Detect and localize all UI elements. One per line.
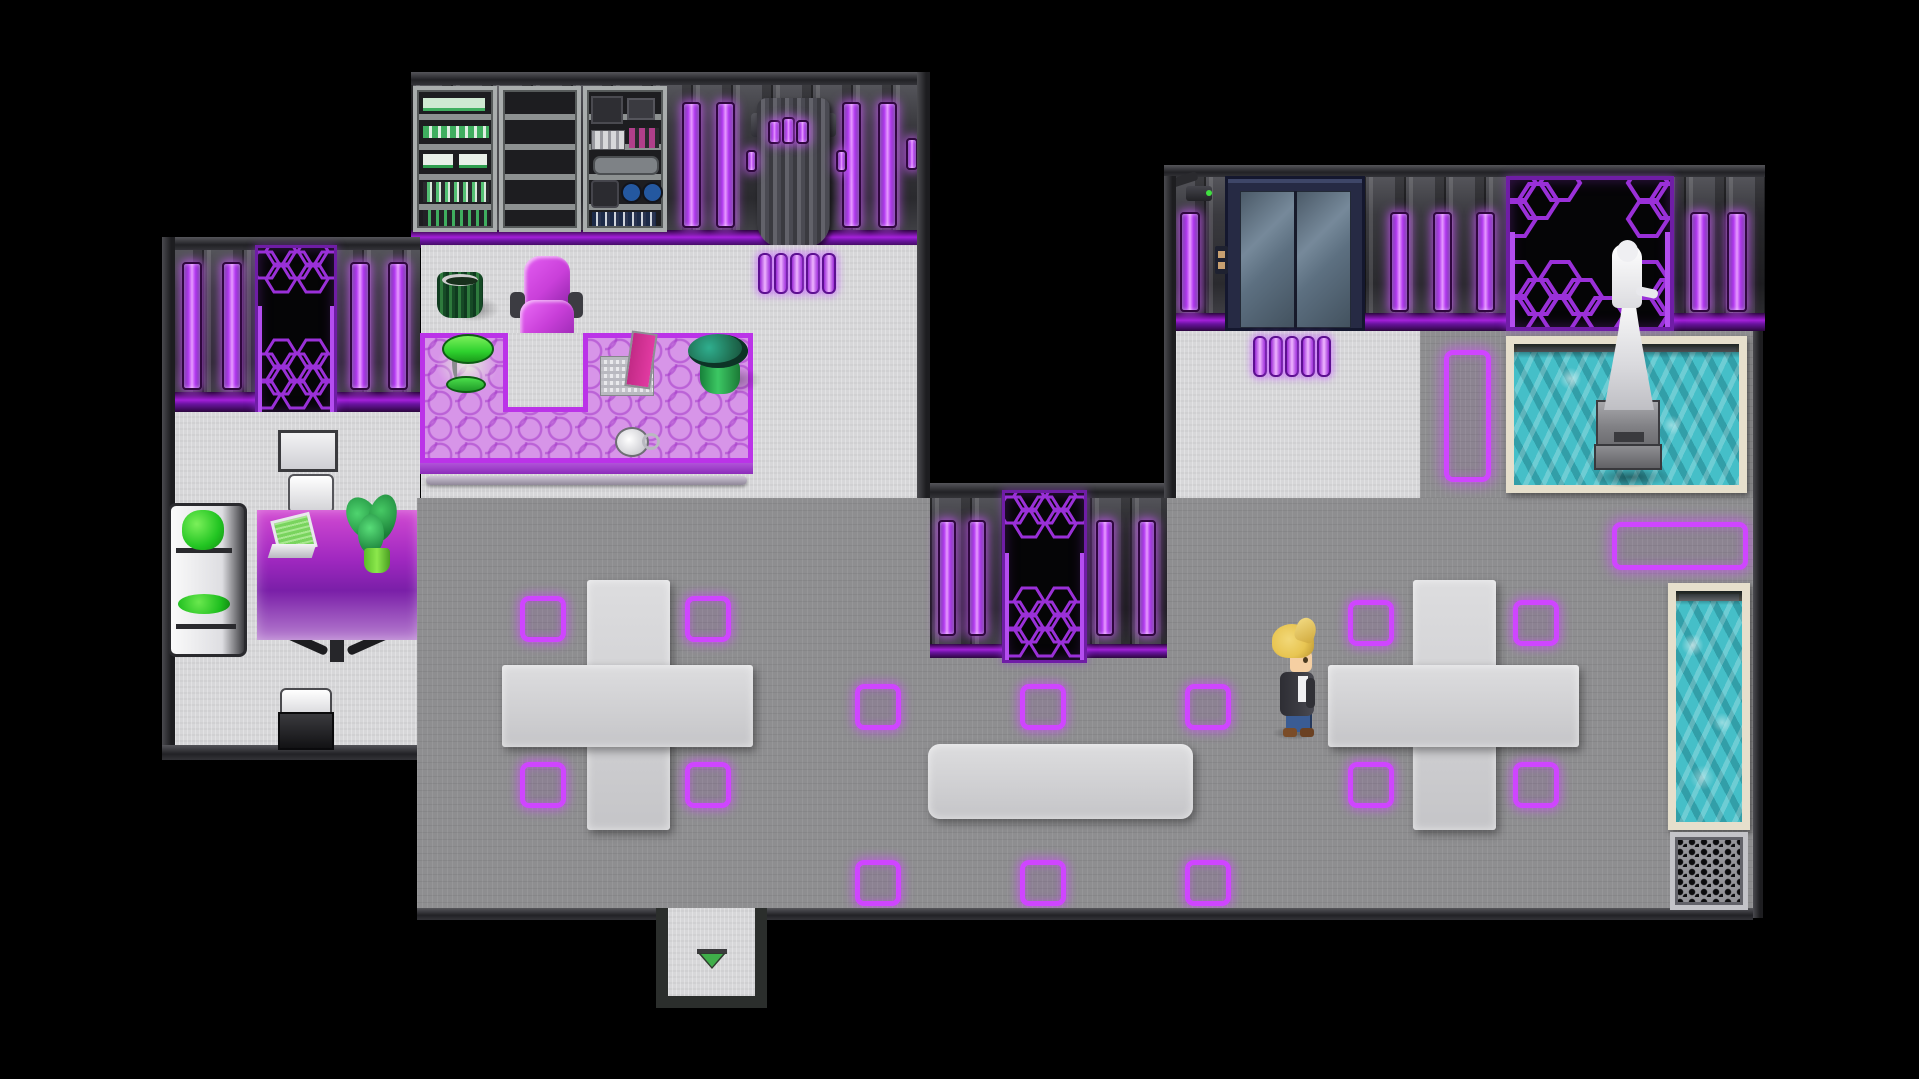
rack-device bbox=[591, 130, 625, 150]
floor-light-pill bbox=[1253, 336, 1267, 377]
elevator-door-gap bbox=[1294, 191, 1297, 328]
rack-module bbox=[459, 154, 487, 168]
wall-light-bar bbox=[968, 520, 986, 636]
rack-module bbox=[423, 98, 485, 111]
wall-light-bar bbox=[222, 262, 242, 390]
wall-light-bar bbox=[682, 102, 701, 228]
sofa-seam bbox=[176, 624, 236, 629]
player-shoe bbox=[1283, 728, 1297, 737]
wall-light-bar bbox=[1138, 520, 1156, 636]
rack-dial bbox=[642, 182, 663, 203]
call-button[interactable] bbox=[1218, 251, 1225, 258]
rack-dial bbox=[621, 182, 642, 203]
glow-floor-marker bbox=[1348, 762, 1394, 808]
call-button[interactable] bbox=[1218, 262, 1225, 269]
rack-device bbox=[591, 180, 619, 208]
glow-floor-marker bbox=[1020, 860, 1066, 906]
wall-light-bar bbox=[1690, 212, 1710, 312]
floor-light-pill bbox=[1285, 336, 1299, 377]
floor-light-pill bbox=[758, 253, 772, 294]
center-hex-door[interactable] bbox=[1002, 490, 1087, 663]
server-rack-green-modules bbox=[413, 86, 497, 232]
floor-light-pill bbox=[790, 253, 804, 294]
server-rack-equipment bbox=[583, 86, 667, 232]
floor-light-pill bbox=[1301, 336, 1315, 377]
lounge-hex-door[interactable] bbox=[255, 245, 337, 415]
pedestal-plaque bbox=[1614, 432, 1644, 442]
elevator-hall-left-edge bbox=[1164, 176, 1176, 498]
wall-light-bar bbox=[1180, 212, 1200, 312]
glow-floor-marker bbox=[855, 684, 901, 730]
horizontal-glow-rectangle bbox=[1612, 522, 1748, 570]
statue-base bbox=[1594, 444, 1662, 470]
hall-bottom-trim bbox=[417, 908, 658, 920]
glow-floor-marker bbox=[1348, 600, 1394, 646]
floor-light-pill bbox=[1317, 336, 1331, 377]
wall-light-bar bbox=[716, 102, 735, 228]
wall-light-bar bbox=[1433, 212, 1452, 312]
laptop-base bbox=[268, 544, 317, 558]
green-desk-lamp bbox=[442, 334, 494, 364]
floor-grate bbox=[1670, 832, 1748, 910]
office-wall-top-trim bbox=[411, 72, 930, 85]
wall-light-bar bbox=[388, 262, 408, 390]
lounge-left-edge bbox=[162, 237, 175, 760]
rack-module bbox=[423, 154, 453, 168]
camera-led bbox=[1206, 190, 1212, 196]
floor-light-pill bbox=[822, 253, 836, 294]
glow-floor-marker bbox=[685, 762, 731, 808]
bin-paper bbox=[442, 274, 478, 286]
black-terminal-desk bbox=[278, 712, 334, 750]
elevator-door-left[interactable] bbox=[1240, 191, 1295, 328]
glow-floor-marker bbox=[685, 596, 731, 642]
wall-light-bar bbox=[1390, 212, 1409, 312]
rack-magenta-slots bbox=[629, 128, 659, 148]
glow-floor-marker bbox=[1185, 684, 1231, 730]
elevator[interactable] bbox=[1225, 176, 1365, 331]
white-stool bbox=[288, 474, 334, 514]
desk-front bbox=[420, 463, 753, 474]
wall-light-bar bbox=[1476, 212, 1495, 312]
office-right-edge bbox=[917, 72, 930, 498]
rack-slots bbox=[592, 212, 656, 226]
wall-light-bar bbox=[938, 520, 956, 636]
game-viewport bbox=[0, 0, 1919, 1079]
wall-light-bar bbox=[878, 102, 897, 228]
drape-light bbox=[796, 120, 809, 144]
rack-device bbox=[591, 96, 623, 124]
glow-floor-marker bbox=[1020, 684, 1066, 730]
wall-pool bbox=[1668, 583, 1750, 830]
rack-connector bbox=[593, 156, 659, 175]
cup-handle bbox=[642, 433, 660, 450]
elevator-door-right[interactable] bbox=[1296, 191, 1351, 328]
glow-floor-marker bbox=[1513, 762, 1559, 808]
pool-water bbox=[1676, 601, 1742, 822]
cross-platform-right-horizontal bbox=[1328, 665, 1579, 747]
sofa-cushion-green bbox=[178, 594, 230, 614]
rack-module bbox=[423, 182, 489, 202]
wall-light-bar bbox=[182, 262, 202, 390]
drape-light bbox=[768, 120, 781, 144]
white-desk bbox=[278, 430, 338, 472]
floor-light-pill bbox=[774, 253, 788, 294]
pool-inner-shadow bbox=[1676, 591, 1742, 605]
floor-light-pill bbox=[806, 253, 820, 294]
plant-leaves bbox=[688, 334, 748, 368]
player-arm bbox=[1306, 678, 1315, 708]
hall-bottom-trim bbox=[765, 908, 1753, 920]
desk-cutout bbox=[503, 333, 588, 412]
wall-light-bar bbox=[1727, 212, 1747, 312]
glow-floor-marker bbox=[1185, 860, 1231, 906]
rack-module bbox=[423, 126, 489, 138]
rack-device bbox=[627, 98, 655, 120]
glow-floor-marker bbox=[855, 860, 901, 906]
bench-platform bbox=[928, 744, 1193, 819]
wall-light-bar bbox=[350, 262, 370, 390]
drape-light bbox=[782, 117, 795, 144]
drape-light bbox=[836, 150, 847, 172]
lamp-base bbox=[446, 376, 486, 393]
exit-arrow[interactable] bbox=[701, 954, 723, 967]
server-rack-empty bbox=[499, 86, 581, 232]
white-statue-head bbox=[1617, 240, 1638, 262]
plant-pot bbox=[364, 548, 390, 573]
desk-base-bar bbox=[426, 476, 747, 485]
sofa-cushion-green bbox=[182, 510, 224, 550]
cross-platform-left-horizontal bbox=[502, 665, 753, 747]
vertical-glow-rectangle bbox=[1444, 350, 1491, 482]
glow-floor-marker bbox=[1513, 600, 1559, 646]
glow-floor-marker bbox=[520, 762, 566, 808]
floor-light-pill bbox=[1269, 336, 1283, 377]
glow-floor-marker bbox=[520, 596, 566, 642]
wall-light-bar bbox=[1096, 520, 1114, 636]
statue-alcove bbox=[1506, 176, 1674, 331]
player-eye bbox=[1303, 657, 1308, 663]
player-shoe bbox=[1300, 728, 1314, 737]
rack-module bbox=[423, 210, 489, 226]
elevator-call-panel[interactable] bbox=[1215, 246, 1228, 274]
drape-light bbox=[746, 150, 757, 172]
